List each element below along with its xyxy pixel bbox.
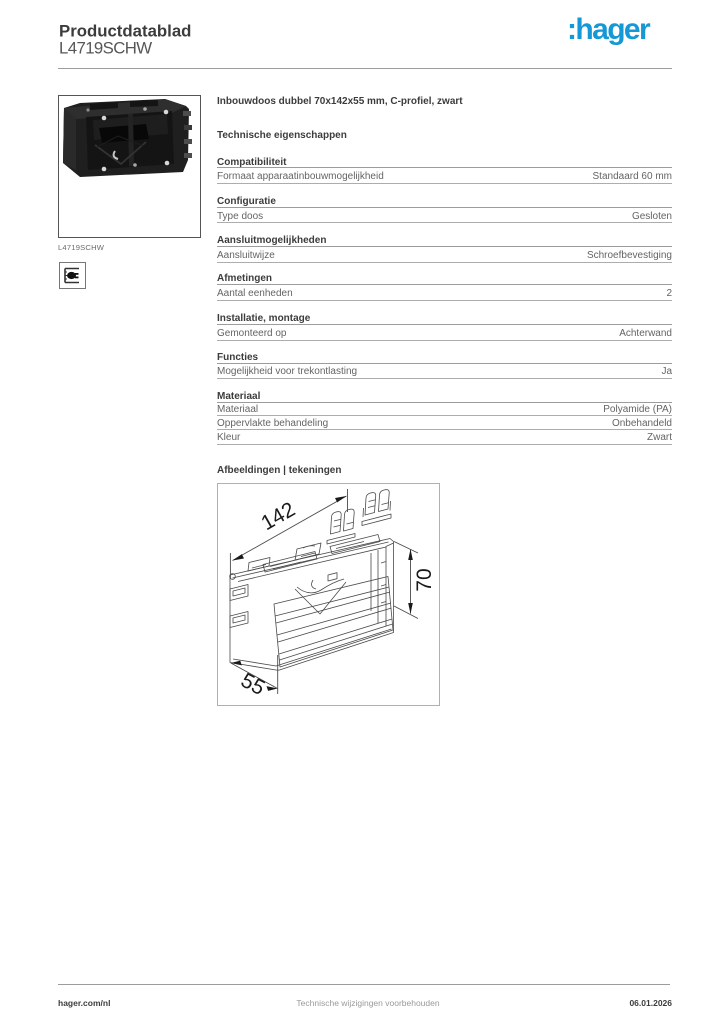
svg-text:70: 70 — [413, 568, 436, 591]
svg-text:55: 55 — [237, 669, 268, 700]
svg-text::hager: :hager — [567, 13, 651, 46]
svg-text:142: 142 — [257, 498, 299, 535]
svg-text:L4719SCHW: L4719SCHW — [59, 39, 152, 58]
